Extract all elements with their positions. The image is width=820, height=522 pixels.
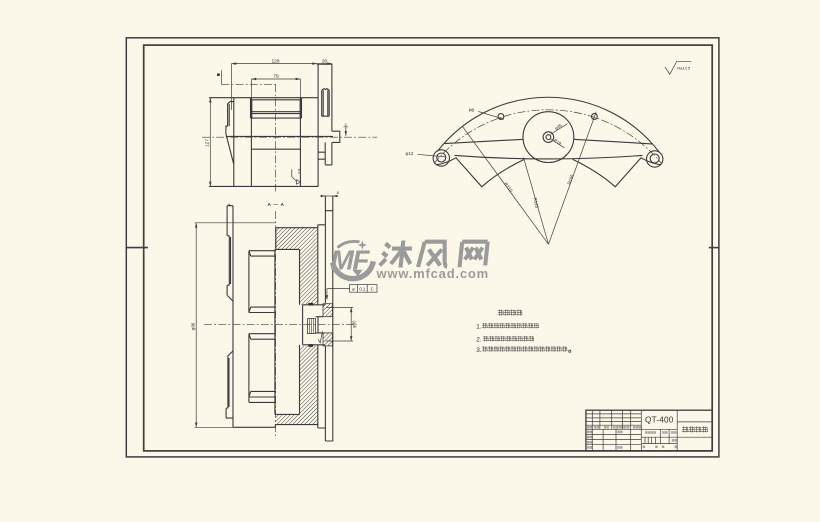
- svg-text:79: 79: [273, 74, 279, 80]
- svg-text:4: 4: [345, 123, 347, 127]
- svg-text:φ12: φ12: [406, 151, 414, 156]
- svg-text:127: 127: [204, 139, 210, 147]
- svg-text:3.: 3.: [476, 347, 482, 354]
- svg-text:0.1: 0.1: [359, 287, 365, 292]
- svg-text:8: 8: [337, 191, 339, 195]
- svg-text:A — A: A — A: [267, 202, 284, 208]
- svg-text:128: 128: [271, 58, 279, 64]
- svg-text:20: 20: [322, 58, 328, 64]
- svg-text:MF: MF: [331, 245, 371, 276]
- svg-text:C: C: [371, 287, 374, 292]
- svg-text:φ96: φ96: [190, 322, 195, 330]
- svg-text:1.: 1.: [476, 324, 482, 331]
- svg-text:Ra12.5: Ra12.5: [677, 66, 691, 71]
- svg-text:6.3: 6.3: [297, 169, 301, 174]
- svg-text:φ30: φ30: [352, 320, 357, 328]
- svg-text:2.: 2.: [476, 337, 482, 344]
- svg-text:www.mfcad.com: www.mfcad.com: [376, 266, 490, 281]
- svg-text:QT-400: QT-400: [645, 416, 674, 425]
- svg-text:⌀: ⌀: [352, 287, 355, 292]
